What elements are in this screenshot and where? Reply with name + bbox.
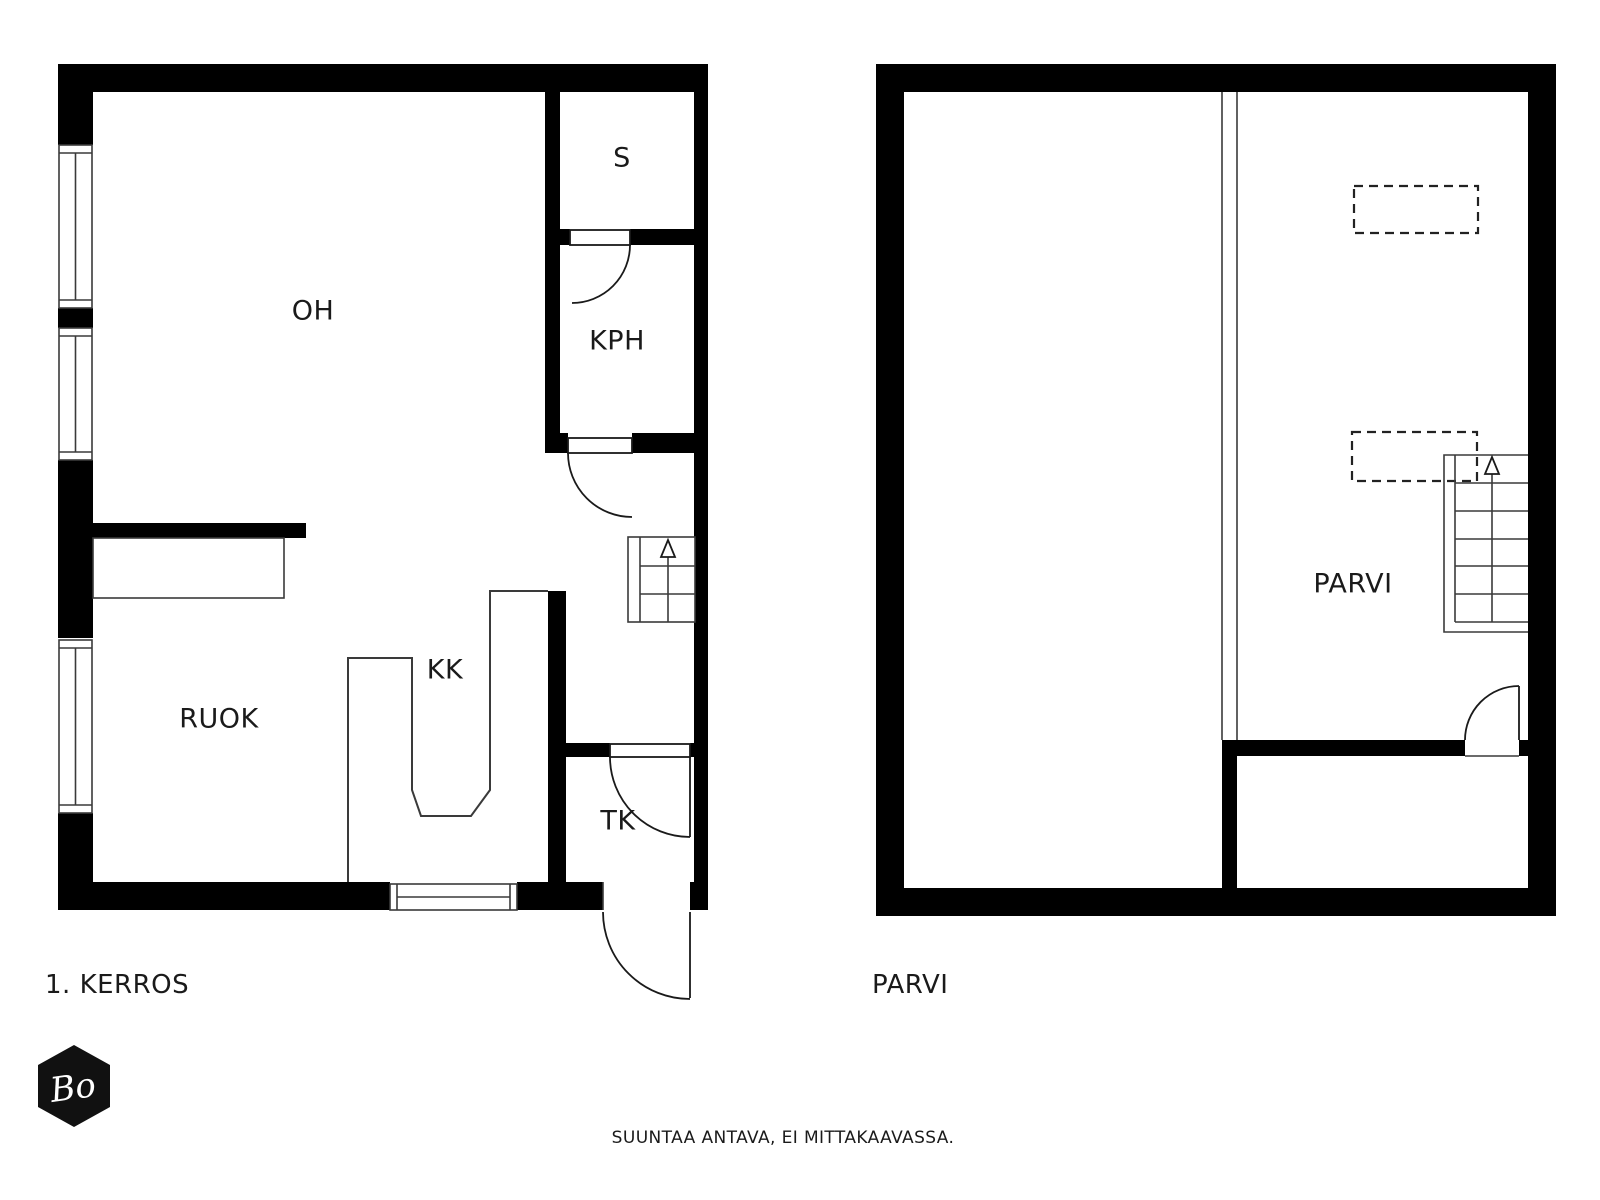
room-label-kk: KK <box>427 655 464 686</box>
front-door <box>603 882 690 999</box>
window <box>59 145 92 308</box>
bathroom-door <box>568 438 632 517</box>
floor-caption-loft: PARVI <box>872 970 948 1000</box>
loft-door <box>1465 686 1519 756</box>
up-arrow-icon <box>1485 457 1499 474</box>
room-label-kph: KPH <box>589 326 645 357</box>
floorplan-loft: PARVI <box>876 64 1556 916</box>
room-label-ruok: RUOK <box>179 704 259 735</box>
floorplan-first-floor: OH S KPH KK RUOK TK <box>58 64 708 999</box>
floor-caption-first: 1. KERROS <box>45 970 189 1000</box>
window <box>59 640 92 813</box>
kitchen-counter <box>348 591 548 882</box>
first-floor-walls <box>58 64 708 910</box>
stairs-first-floor <box>628 537 695 622</box>
window <box>390 884 517 910</box>
window <box>59 328 92 460</box>
company-logo: Bo <box>38 1045 110 1127</box>
sauna-door <box>570 230 630 303</box>
disclaimer-text: SUUNTAA ANTAVA, EI MITTAKAAVASSA. <box>612 1128 955 1148</box>
room-label-parvi: PARVI <box>1313 569 1392 600</box>
room-label-s: S <box>613 143 631 174</box>
floorplan-page: OH S KPH KK RUOK TK <box>0 0 1600 1200</box>
room-label-tk: TK <box>599 806 636 837</box>
stairs-loft <box>1444 455 1528 632</box>
logo-text: Bo <box>47 1065 99 1111</box>
room-label-oh: OH <box>292 296 335 327</box>
dashed-opening-top <box>1354 186 1478 233</box>
counter-table <box>93 538 284 598</box>
floorplan-drawing: OH S KPH KK RUOK TK <box>0 0 1600 1200</box>
loft-void-edge <box>1222 92 1237 740</box>
dashed-opening-bottom <box>1352 432 1477 481</box>
loft-walls <box>876 64 1556 916</box>
